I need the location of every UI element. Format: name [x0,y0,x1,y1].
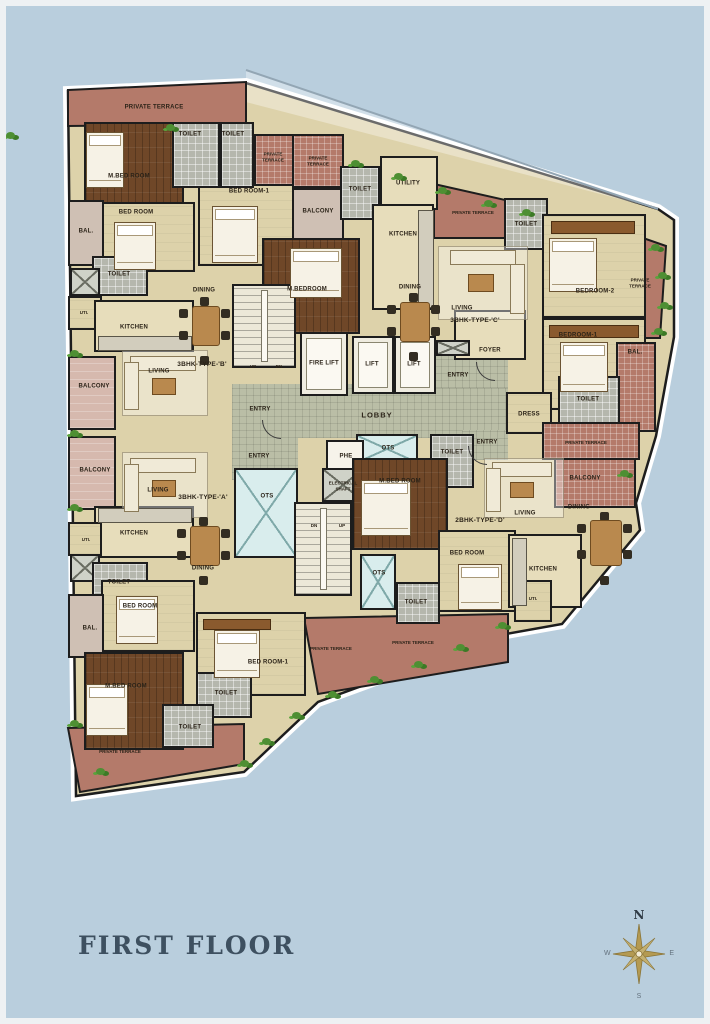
label-lift-1: LIFT [365,361,378,369]
bush-3 [438,187,447,194]
coffee-table-b [152,378,176,395]
label-dn-2: DN [311,523,318,529]
label-uti-d: UTI. [529,596,538,602]
compass-south-label: S [637,993,642,1000]
room-balcony-d [554,458,636,508]
entry-c-corridor [434,356,508,388]
label-bal-c: BAL. [628,349,643,357]
sofa-living-c [450,250,516,265]
label-kitchen-b: KITCHEN [120,324,148,332]
label-bedroom-b: BED ROOM [119,209,154,217]
label-mbed-a: M.BED ROOM [105,683,147,691]
ots-big [234,468,298,558]
label-entry-d: ENTRY [476,439,497,447]
bush-21 [70,350,79,357]
bush-13 [414,661,423,668]
label-kitchen-c: KITCHEN [389,231,417,239]
compass-north-label: N [634,908,645,922]
label-private-terrace-c3: PRIVATE TERRACE [621,277,659,288]
label-bal-a: BAL. [83,625,98,633]
label-private-terrace-b2: PRIVATE TERRACE [254,151,292,162]
label-toilet-c1: TOILET [349,186,371,194]
label-toilet-mid: TOILET [405,599,427,607]
label-mbed-d: M.BED ROOM [379,478,421,486]
bed-mbed-a [86,684,128,736]
label-uti-a: UTI. [82,537,91,543]
bush-25 [6,132,15,139]
label-balcony-a: BALCONY [79,467,110,475]
compass-rose: N W E S [604,908,674,1000]
label-up-2: UP [339,523,345,529]
ots-small [360,554,396,610]
coffee-table-c [468,274,494,292]
sofa2-living-a [124,464,139,512]
bush-19 [96,768,105,775]
kitchen-counter-d [512,538,527,606]
bush-12 [456,644,465,651]
kitchen-counter-c [418,210,434,308]
label-ots-big: OTS [261,493,274,501]
bed-bedroom1-a [214,630,260,678]
dining-chairs-d [577,524,586,533]
label-lobby: LOBBY [361,410,392,419]
bush-10 [620,470,629,477]
dining-table-c [400,302,430,342]
label-type-c: 3BHK-TYPE-'C' [450,317,499,325]
dining-chairs-b [179,309,188,318]
label-private-terrace-a: PRIVATE TERRACE [99,749,141,755]
label-mbed-b: M.BED ROOM [108,173,150,181]
label-living-d: LIVING [514,510,535,518]
room-balcony-b [68,356,116,430]
bush-23 [70,504,79,511]
bush-11 [498,622,507,629]
label-bedroom-d: BED ROOM [450,550,485,558]
label-lift-2: LIFT [407,361,420,369]
compass-west-label: W [604,950,611,957]
label-private-terrace-c1: PRIVATE TERRACE [298,155,338,166]
label-living-a: LIVING [147,487,168,495]
label-balcony-b: BALCONY [78,383,109,391]
label-foyer-c: FOYER [479,347,501,355]
sofa2-living-d [486,468,501,512]
bed-bedroom2-c [549,238,597,292]
bush-7 [658,272,667,279]
label-private-terrace-d2: PRIVATE TERRACE [309,646,353,652]
dining-chairs-a [177,529,186,538]
label-entry-c: ENTRY [447,372,468,380]
sofa2-living-b [124,362,139,410]
staircase-bottom [294,502,352,596]
label-toilet-a1: TOILET [108,579,130,587]
bush-22 [70,430,79,437]
label-toilet-d1: TOILET [441,449,463,457]
label-dining-c: DINING [399,284,421,292]
bush-1 [351,160,360,167]
label-toilet-a3: TOILET [179,724,201,732]
dining-table-a [190,526,220,566]
dining-table-d [590,520,622,566]
bush-9 [654,328,663,335]
bush-2 [394,173,403,180]
compass-east-label: E [669,950,674,957]
dining-chairs-c [387,305,396,314]
label-phe: PHE [340,453,353,461]
label-toilet-c2: TOILET [515,221,537,229]
sofa-living-a [130,458,196,473]
bush-16 [292,712,301,719]
bush-4 [484,200,493,207]
floor-plan-page: PRIVATE TERRACE M.BED ROOM TOILET TOILET… [0,0,710,1024]
dining-table-b [192,306,220,346]
label-bedroom1-b: BED ROOM-1 [229,188,269,196]
bed-mbed-d [361,480,411,536]
bush-15 [328,691,337,698]
bush-6 [651,244,660,251]
bed-bedroom-d [458,564,502,610]
bush-20 [70,720,79,727]
label-entry-b: ENTRY [249,406,270,414]
label-bedroom1-a: BED ROOM-1 [248,659,288,667]
label-private-terrace-b: PRIVATE TERRACE [125,104,184,112]
label-living-c: LIVING [451,305,472,313]
label-private-terrace-d1: PRIVATE TERRACE [392,640,434,646]
label-bedroom-a: BED ROOM [123,603,158,611]
label-type-d: 2BHK-TYPE-'D' [455,517,504,525]
label-ots-mid: OTS [382,445,395,453]
kitchen-counter-b [98,336,192,351]
label-toilet-b3: TOILET [108,271,130,279]
bush-17 [262,738,271,745]
label-type-b: 3BHK-TYPE-'B' [177,361,226,369]
label-dining-a: DINING [192,565,214,573]
label-living-b: LIVING [148,368,169,376]
shaft-core-top [436,340,470,356]
label-toilet-b2: TOILET [222,131,244,139]
bush-14 [370,676,379,683]
page-title: FIRST FLOOR [78,931,295,960]
label-toilet-c3: TOILET [577,396,599,404]
label-private-terrace-c2: PRIVATE TERRACE [452,210,494,216]
kitchen-counter-a [98,508,192,523]
bed-bedroom1-b [212,206,258,263]
label-up-1: UP [250,364,256,370]
label-bal-b: BAL. [79,228,94,236]
bed-bedroom-b [114,222,156,270]
label-elec-shaft: ELECTRICAL SHAFT [326,480,360,491]
label-toilet-b1: TOILET [179,131,201,139]
label-private-terrace-c4: PRIVATE TERRACE [565,440,607,446]
label-dress-c: DRESS [518,411,540,419]
label-kitchen-a: KITCHEN [120,530,148,538]
label-dining-d: DINING [568,504,590,512]
label-uti-b: UTI. [80,310,89,316]
sofa2-living-c [510,264,525,314]
label-balcony-d: BALCONY [561,475,609,483]
label-type-a: 3BHK-TYPE-'A' [178,494,227,502]
shaft-left-1 [70,268,100,296]
sofa-living-d [492,462,552,477]
label-bedroom1-c: BEDROOM-1 [559,332,597,340]
terrace-bottom-center [304,614,508,694]
label-dining-b: DINING [193,287,215,295]
label-fire-lift: FIRE LIFT [309,360,339,368]
label-toilet-a2: TOILET [215,690,237,698]
label-kitchen-d: KITCHEN [529,566,557,574]
staircase-top [232,284,296,368]
bush-24 [166,124,175,131]
wardrobe-bedroom1-a [203,619,271,630]
label-balcony-c: BALCONY [302,208,333,216]
label-entry-a: ENTRY [248,453,269,461]
bush-5 [522,209,531,216]
bed-bedroom1-c [560,342,608,392]
label-mbed-c: M.BEDROOM [287,286,327,294]
label-bedroom2-c: BEDROOM-2 [576,288,614,296]
bush-8 [660,302,669,309]
coffee-table-d [510,482,534,498]
label-ots-small: OTS [373,570,386,578]
label-utility-c: UTILITY [396,180,420,188]
bush-18 [240,760,249,767]
wardrobe-bedroom2-c [551,221,635,234]
label-dn-1: DN [276,364,283,370]
